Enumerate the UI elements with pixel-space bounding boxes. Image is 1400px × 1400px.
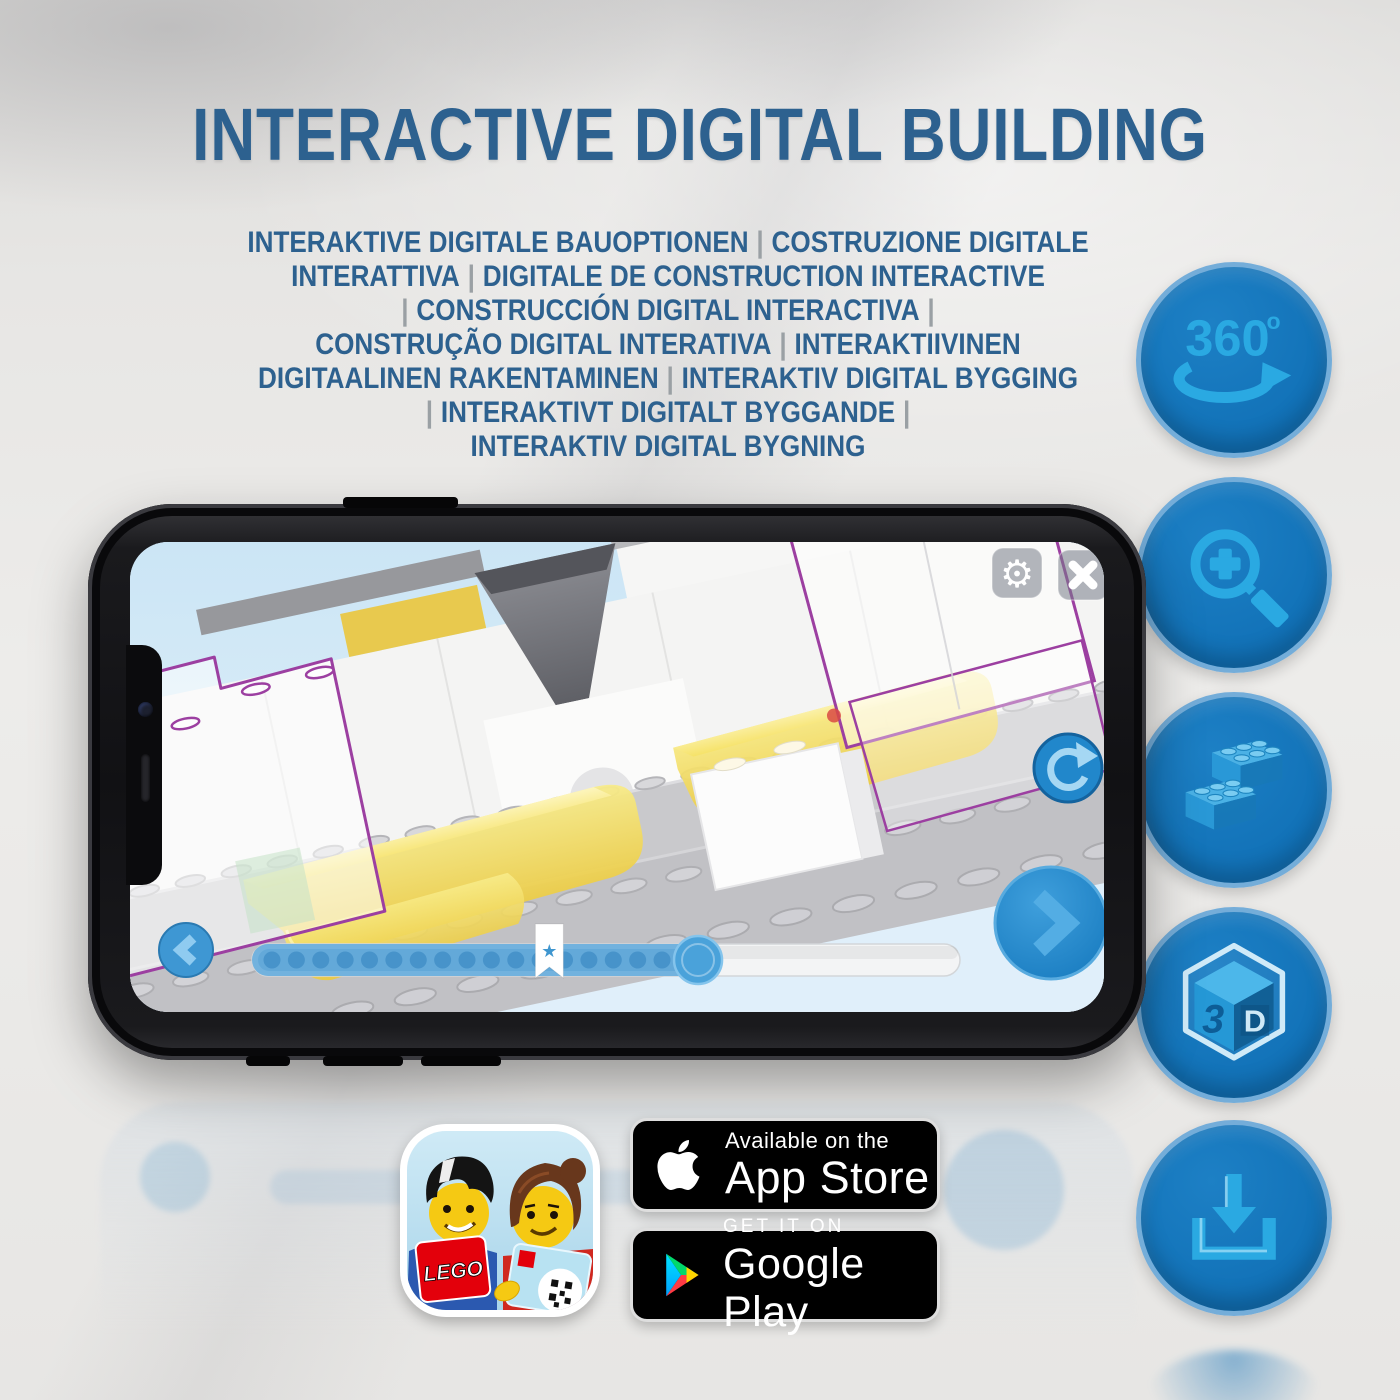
phone-mockup: ⚙	[88, 504, 1146, 1060]
lego-3d-scene	[130, 542, 1104, 1012]
subtitle: INTERAKTIVE DIGITALE BAUOPTIONEN|COSTRUZ…	[146, 226, 1190, 464]
phone-side-button	[343, 497, 458, 508]
page: INTERACTIVE DIGITAL BUILDING INTERAKTIVE…	[0, 0, 1400, 1400]
google-play-tagline: GET IT ON	[723, 1215, 937, 1239]
phone-volume-button	[323, 1056, 403, 1066]
feature-circle-360: 360 o	[1136, 262, 1332, 458]
phone-volume-button	[421, 1056, 501, 1066]
download-icon	[1168, 1152, 1300, 1284]
rotate-button[interactable]	[1034, 734, 1102, 802]
app-store-name: App Store	[725, 1154, 930, 1202]
phone-camera	[138, 702, 153, 717]
page-title: INTERACTIVE DIGITAL BUILDING	[112, 92, 1288, 177]
google-play-logo-icon	[657, 1249, 705, 1301]
phone-side-button	[246, 1056, 290, 1066]
google-play-badge[interactable]: GET IT ON Google Play	[630, 1228, 940, 1322]
svg-text:360: 360	[1185, 310, 1269, 367]
feature-circle-zoom	[1136, 477, 1332, 673]
feature-circle-3d: 3 D	[1136, 907, 1332, 1103]
building-app-screen: ⚙	[130, 542, 1104, 1012]
next-step-button[interactable]	[995, 867, 1104, 979]
star-icon: ★	[541, 941, 557, 962]
3d-cube-icon: 3 D	[1168, 939, 1300, 1071]
app-store-tagline: Available on the	[725, 1129, 930, 1153]
lego-app-icon[interactable]: LEGO	[400, 1124, 600, 1317]
feature-circle-brick	[1136, 692, 1332, 888]
lego-app-artwork: LEGO	[407, 1131, 593, 1310]
google-play-name: Google Play	[723, 1240, 937, 1336]
phone-speaker	[141, 754, 150, 802]
settings-button[interactable]: ⚙	[992, 548, 1042, 598]
brick-icon	[1168, 724, 1300, 856]
feature-circle-download	[1136, 1120, 1332, 1316]
phone-screen: ⚙	[130, 542, 1104, 1012]
svg-text:D: D	[1244, 1003, 1266, 1038]
app-store-badge[interactable]: Available on the App Store	[630, 1118, 940, 1212]
gear-icon: ⚙	[1000, 552, 1034, 596]
zoom-in-icon	[1168, 509, 1300, 641]
close-button[interactable]	[1058, 550, 1104, 600]
slider-thumb[interactable]	[674, 936, 722, 984]
apple-logo-icon	[657, 1135, 707, 1195]
svg-text:o: o	[1267, 308, 1281, 334]
svg-text:3: 3	[1202, 998, 1224, 1042]
previous-step-button[interactable]	[159, 923, 213, 977]
phone-reflection	[100, 1102, 1134, 1400]
360-rotation-icon: 360 o	[1168, 294, 1300, 426]
